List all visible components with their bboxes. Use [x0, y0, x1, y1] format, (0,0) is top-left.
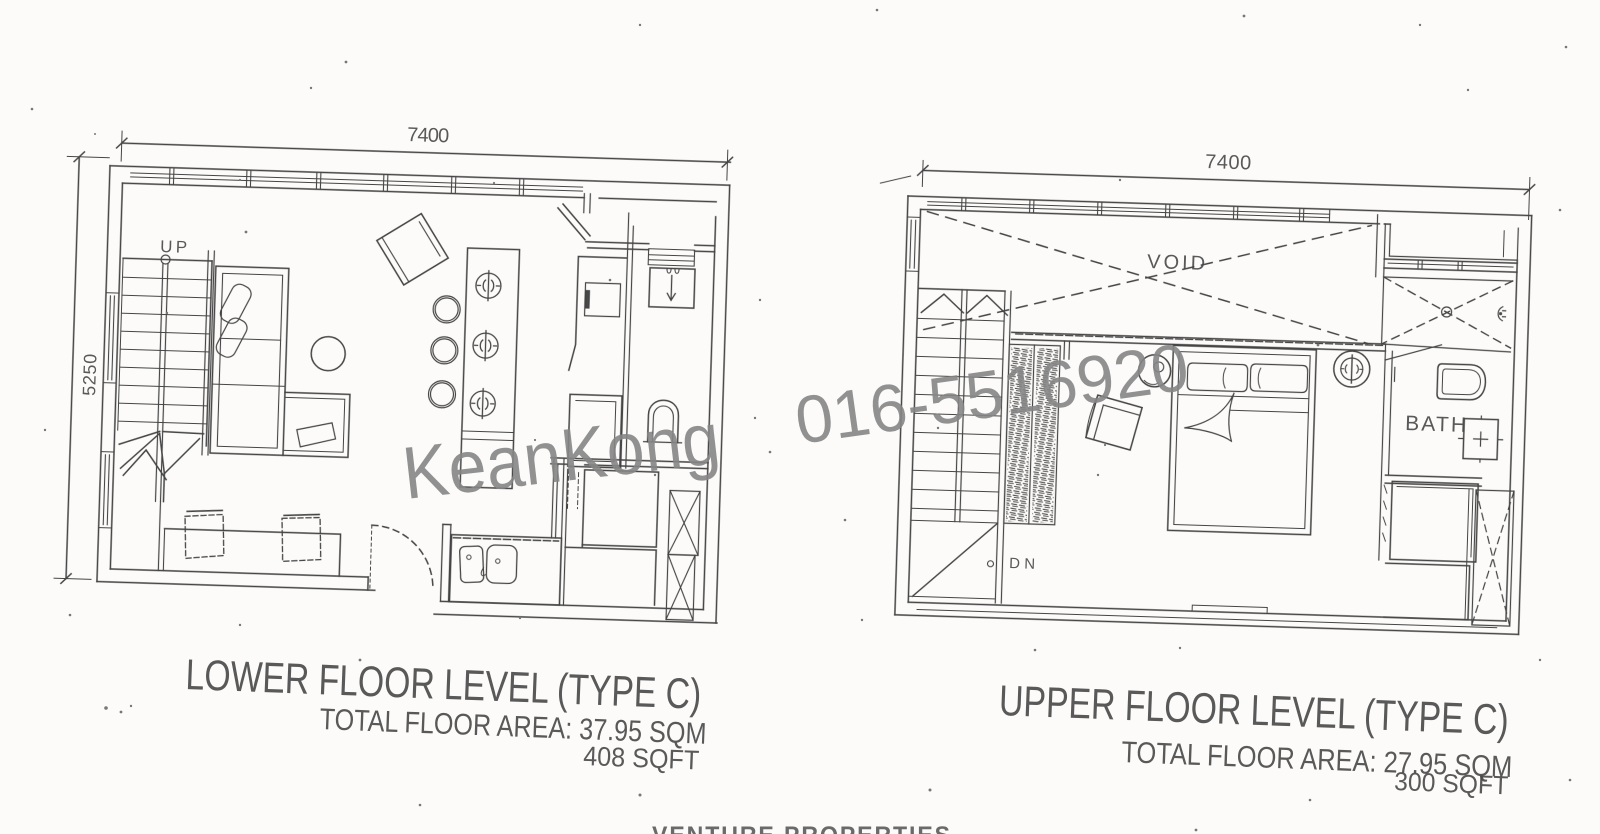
svg-text:408 SQFT: 408 SQFT [583, 741, 700, 775]
svg-text:KeanKong: KeanKong [398, 396, 723, 514]
svg-text:UP: UP [160, 237, 188, 257]
svg-text:DN: DN [1009, 555, 1036, 573]
svg-text:7400: 7400 [407, 124, 450, 147]
svg-text:VENTURE PROPERTIES: VENTURE PROPERTIES [652, 822, 952, 834]
svg-text:BATH: BATH [1405, 412, 1467, 437]
svg-text:VOID: VOID [1147, 251, 1206, 275]
svg-text:5250: 5250 [79, 353, 100, 396]
svg-text:300 SQFT: 300 SQFT [1394, 766, 1509, 800]
svg-text:7400: 7400 [1205, 151, 1252, 174]
svg-text:UPPER FLOOR LEVEL (TYPE C): UPPER FLOOR LEVEL (TYPE C) [998, 677, 1509, 745]
